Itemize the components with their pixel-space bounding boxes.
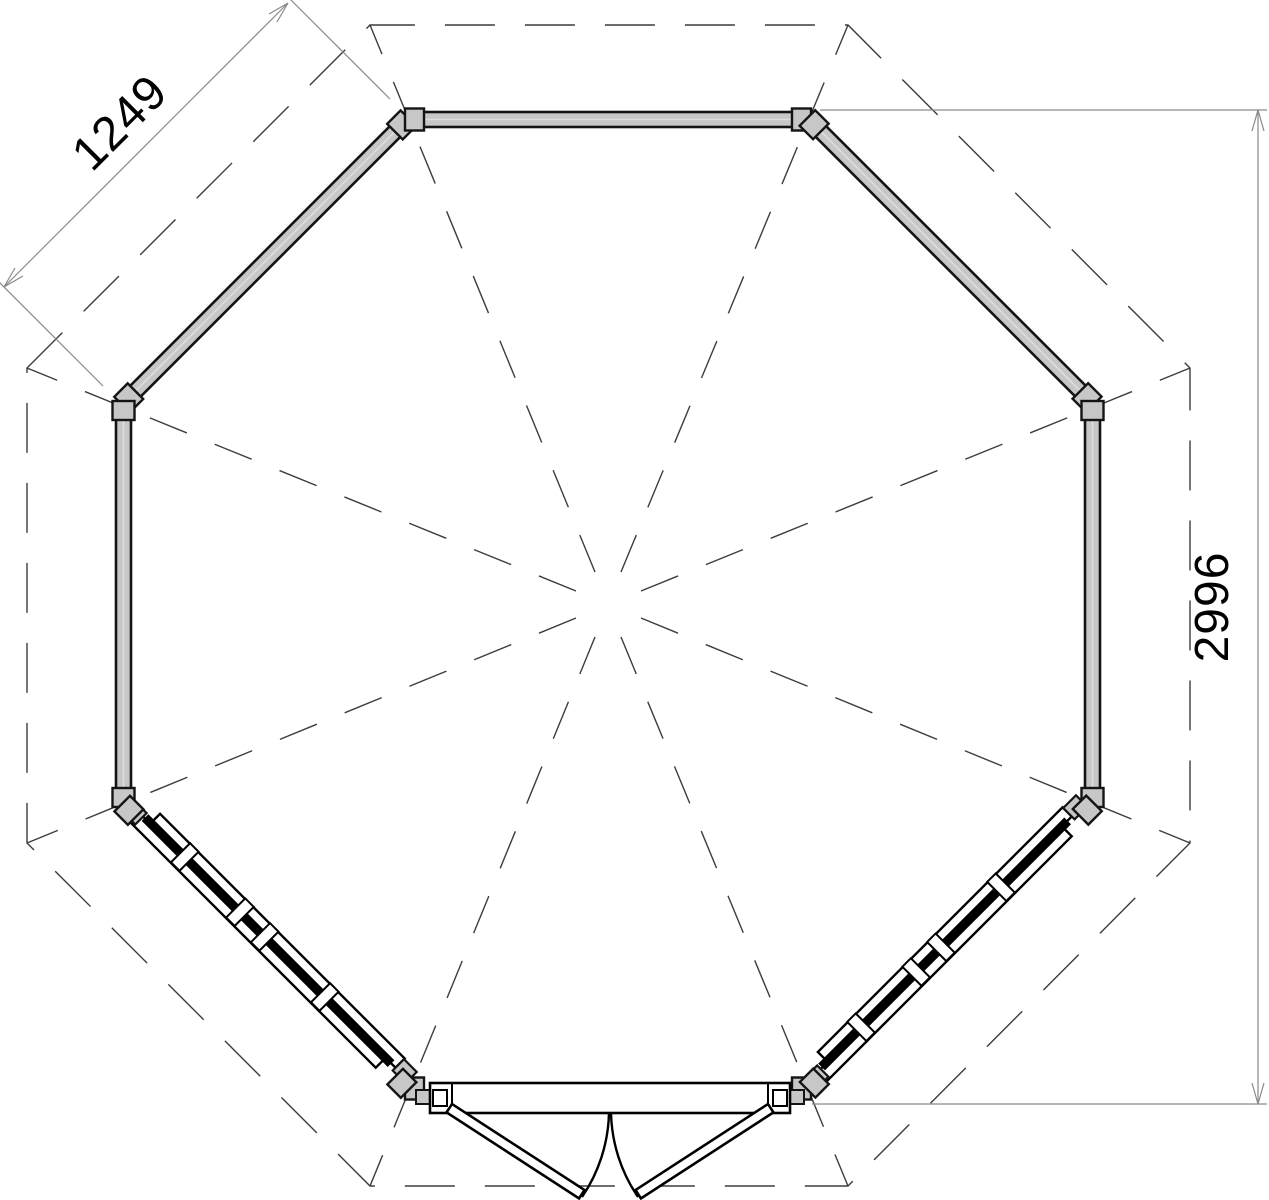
hip-line-left-bottom <box>27 618 576 843</box>
dimension-label-side: 1249 <box>62 65 178 181</box>
floor-plan-canvas: 1249 2996 <box>0 0 1269 1200</box>
corner-post <box>405 109 424 131</box>
window-lower-right <box>793 789 1101 1097</box>
dimension-line <box>4 3 288 287</box>
wall-right <box>1082 401 1104 807</box>
door-swing-arc-right <box>611 1113 638 1197</box>
door-frame <box>430 1083 790 1113</box>
dimension-label-height: 2996 <box>1186 552 1239 663</box>
door-leaf-panel <box>447 1104 585 1198</box>
wall-upper-left <box>114 110 416 412</box>
hip-line-top-right <box>621 25 848 572</box>
wall-upper-right <box>800 110 1102 412</box>
door-swing-arc-left <box>582 1113 609 1197</box>
door-double <box>416 1083 804 1198</box>
wall-stripe <box>133 129 398 394</box>
door-leaf-panel <box>635 1104 773 1198</box>
wall-stripe <box>818 129 1083 394</box>
corner-post <box>113 401 135 420</box>
door-jamb <box>433 1090 447 1106</box>
wall-top <box>405 109 811 131</box>
roof-hip-lines <box>27 25 1190 1186</box>
dimension-extension-line <box>282 0 390 99</box>
roof-overhang-outline <box>27 25 1190 1186</box>
wall-left <box>113 401 135 807</box>
corner-post <box>1082 401 1104 420</box>
door-jamb <box>773 1090 787 1106</box>
hip-line-right-bottom <box>641 618 1190 843</box>
hip-line-top-left <box>370 25 595 572</box>
floor-plan-drawing: 1249 2996 <box>0 0 1269 1200</box>
hip-line-left-top <box>27 368 576 591</box>
window-lower-left <box>114 789 422 1097</box>
dimension-extension-line <box>0 278 103 386</box>
door-leaf-right <box>635 1104 773 1198</box>
dimension-height: 2996 <box>812 110 1267 1104</box>
roof-overhang-octagon <box>27 25 1190 1186</box>
door-leaf-left <box>447 1104 585 1198</box>
hip-line-right-top <box>641 368 1190 591</box>
